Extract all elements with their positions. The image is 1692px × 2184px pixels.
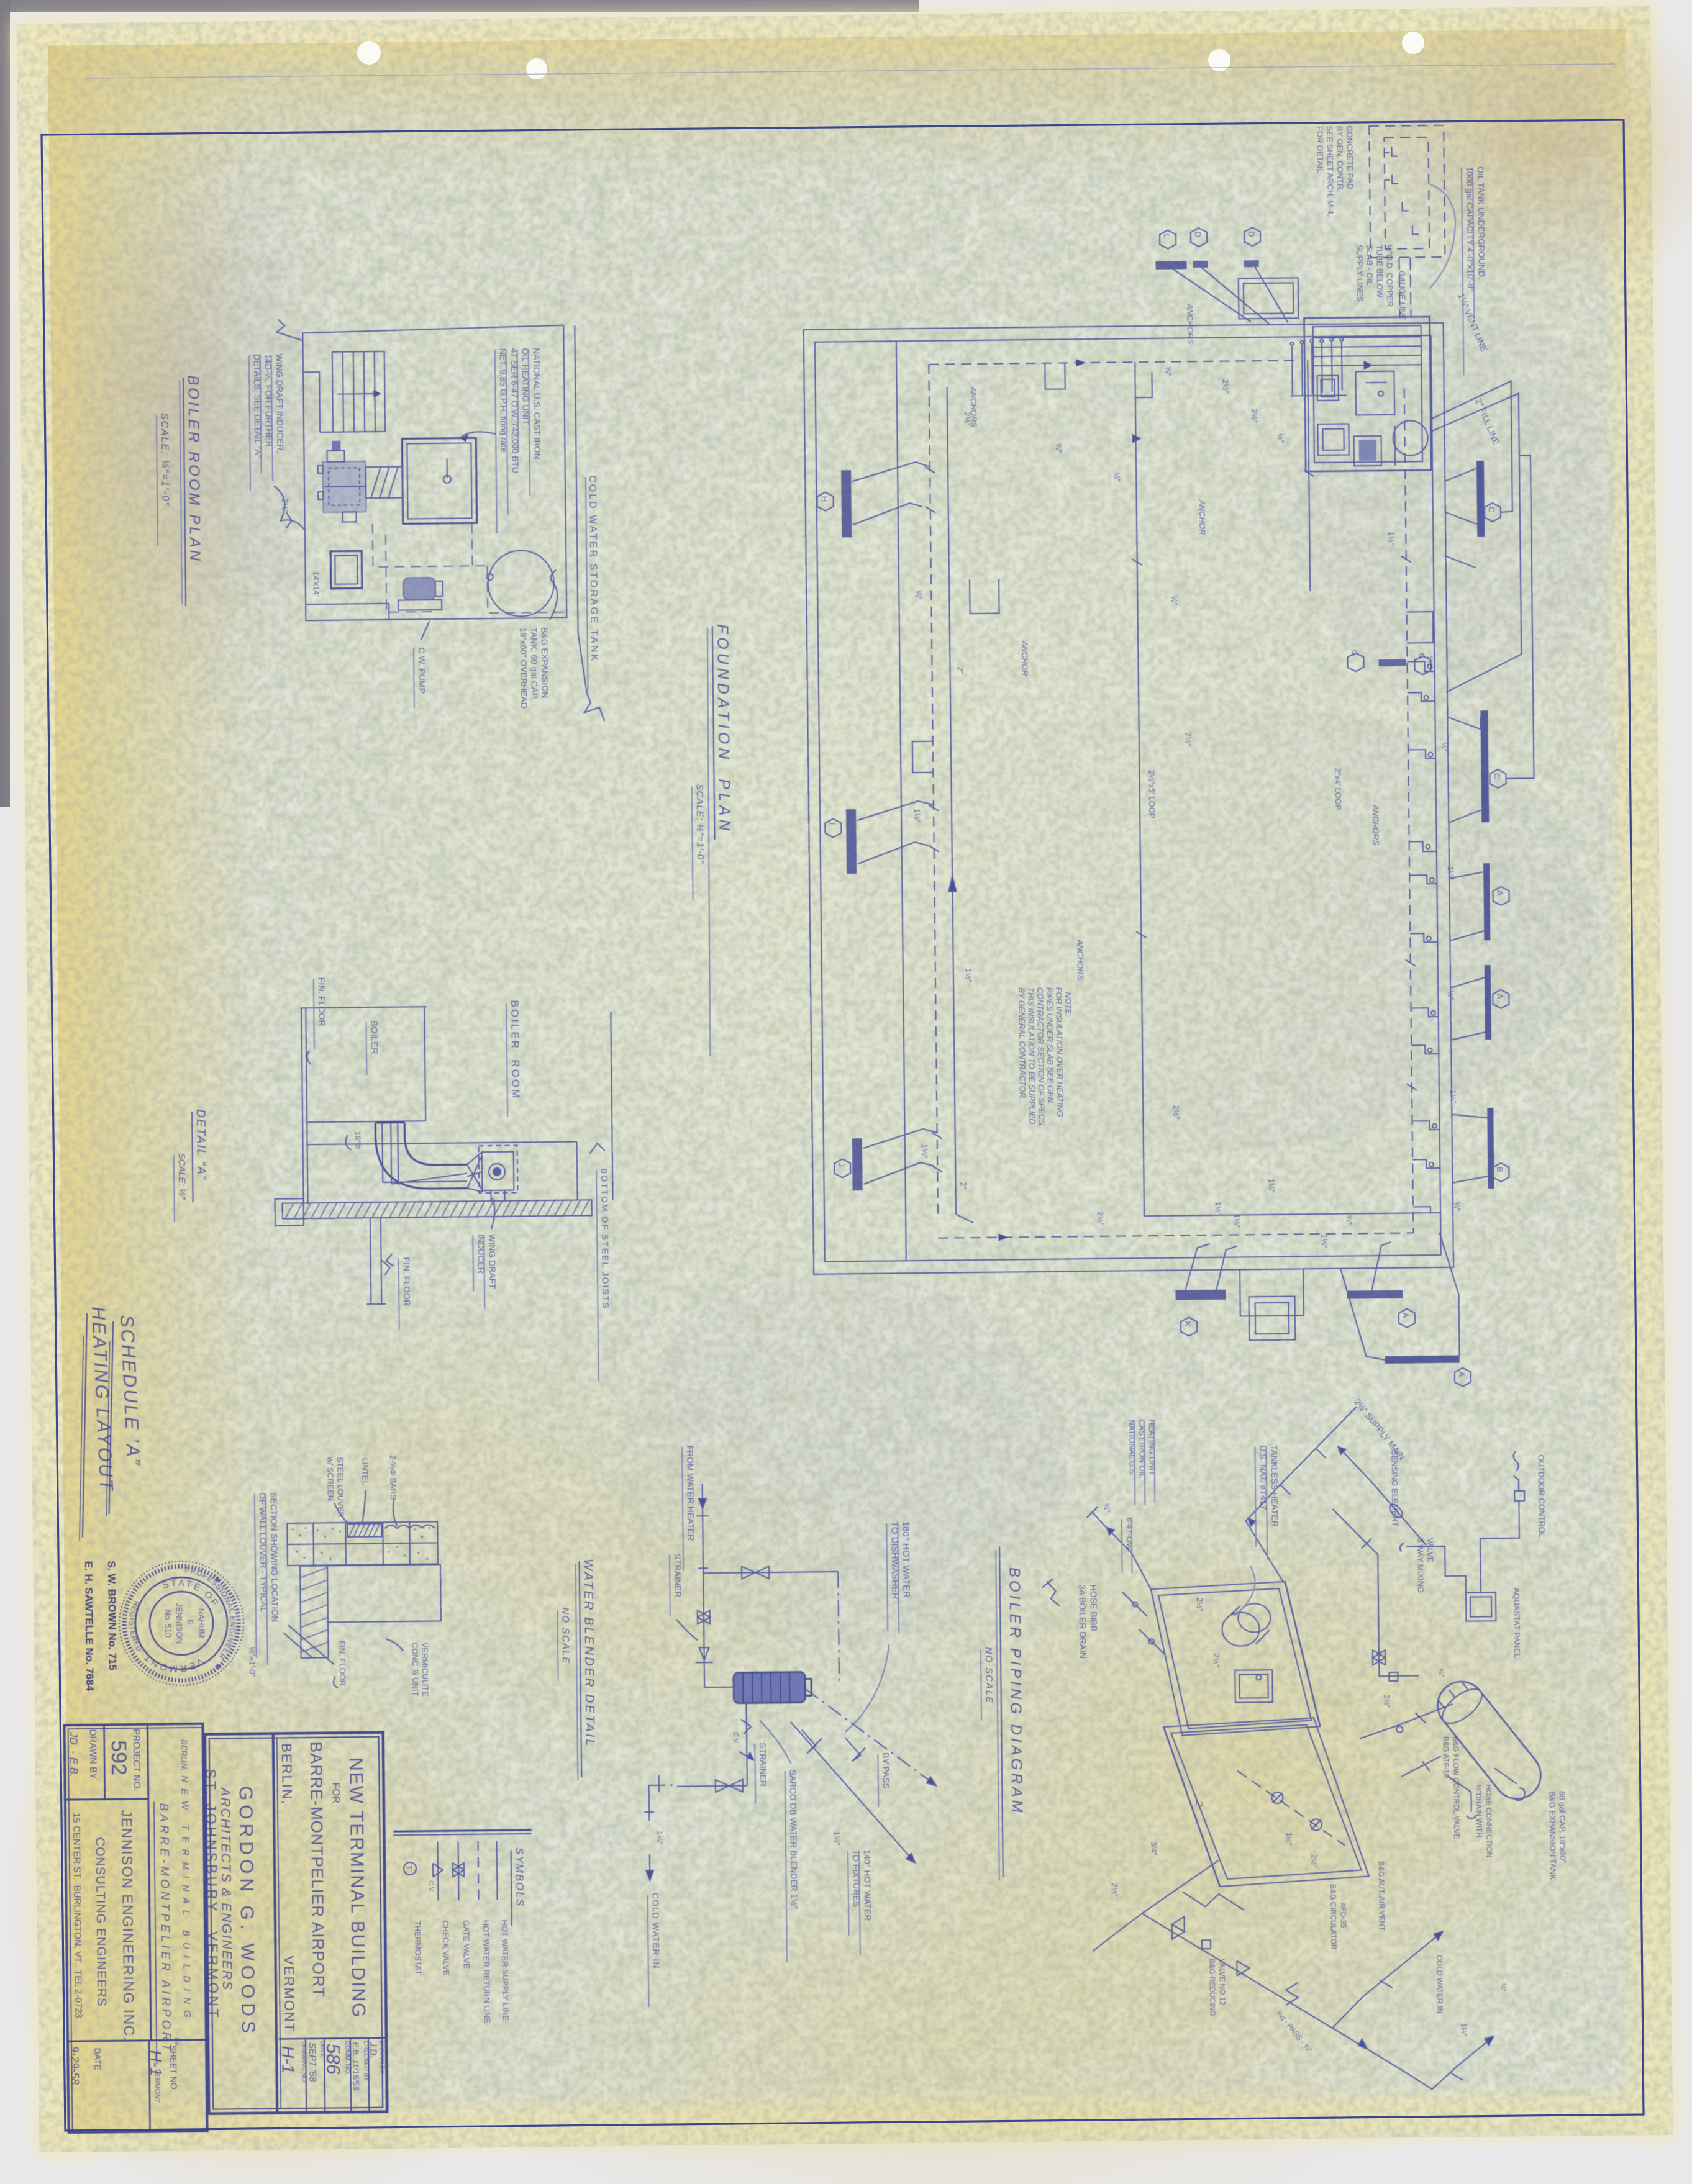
svg-text:HOSE CONNECTION: HOSE CONNECTION (1484, 1784, 1493, 1857)
svg-text:B&G CIRCULATOR: B&G CIRCULATOR (1329, 1884, 1338, 1950)
svg-text:18″x60″ OVERHEAD: 18″x60″ OVERHEAD (519, 627, 529, 709)
svg-text:SECTION SHOWING LOCATION: SECTION SHOWING LOCATION (269, 1492, 280, 1622)
svg-text:BOILER PIPING DIAGRAM: BOILER PIPING DIAGRAM (1006, 1567, 1025, 1816)
svg-text:½″: ½″ (1440, 742, 1449, 752)
svg-text:1½″: 1½″ (1214, 1202, 1223, 1216)
svg-text:2½″: 2½″ (1383, 1695, 1391, 1708)
svg-text:SENSING ELEMENT: SENSING ELEMENT (1390, 1450, 1399, 1527)
svg-text:C: C (1492, 773, 1501, 779)
svg-text:ANCHOR: ANCHOR (1020, 640, 1030, 676)
svg-text:15 CENTER ST. BURLINGTON, VT.: 15 CENTER ST. BURLINGTON, VT. TEL 2-0723 (71, 1813, 84, 2018)
svg-text:S. W. BROWN No. 715: S. W. BROWN No. 715 (106, 1561, 119, 1670)
svg-text:FROM WATER HEATER: FROM WATER HEATER (685, 1445, 696, 1541)
svg-text:COLD WATER IN: COLD WATER IN (651, 1893, 662, 1969)
svg-text:NO SCALE: NO SCALE (983, 1647, 994, 1704)
svg-text:SEE SHEET ARCH. M-4,: SEE SHEET ARCH. M-4, (1325, 126, 1335, 217)
svg-text:CONSULTING ENGINEERS: CONSULTING ENGINEERS (93, 1837, 108, 2006)
svg-text:ANCHORS: ANCHORS (1185, 303, 1195, 344)
svg-text:JENNISON: JENNISON (175, 1603, 184, 1644)
svg-text:CAST IRON OIL: CAST IRON OIL (1137, 1419, 1147, 1478)
svg-text:2½″: 2½″ (1171, 1105, 1181, 1119)
svg-text:HEATING UNIT: HEATING UNIT (1147, 1419, 1157, 1475)
svg-text:DATE: DATE (319, 2041, 325, 2057)
svg-text:BOILER ROOM PLAN: BOILER ROOM PLAN (184, 375, 203, 563)
svg-text:TUBE BELOW: TUBE BELOW (1375, 245, 1385, 298)
svg-text:G: G (1350, 650, 1359, 656)
svg-text:A: A (1495, 994, 1504, 999)
svg-text:THIS INSULATION TO BE SUPPLIED: THIS INSULATION TO BE SUPPLIED (1026, 987, 1037, 1125)
svg-text:¾″: ¾″ (1054, 443, 1063, 453)
svg-text:14′x14′: 14′x14′ (312, 571, 321, 597)
svg-text:¾″: ¾″ (1344, 1215, 1353, 1225)
svg-text:2½″x5′ LOOP: 2½″x5′ LOOP (1147, 770, 1157, 819)
svg-text:BOTTOM OF STEEL JOISTS: BOTTOM OF STEEL JOISTS (599, 1168, 611, 1310)
svg-text:B: B (1495, 1167, 1504, 1172)
svg-text:1¼″: 1¼″ (1449, 1090, 1458, 1104)
svg-text:A: A (1401, 1312, 1411, 1318)
svg-text:CHECKED BY: CHECKED BY (362, 2041, 370, 2081)
svg-text:SCALE: ⅛″=1′-0″: SCALE: ⅛″=1′-0″ (694, 784, 706, 864)
svg-text:C.W. PUMP: C.W. PUMP (417, 647, 427, 694)
svg-text:OIL TANK UNDERGROUND,: OIL TANK UNDERGROUND, (1476, 166, 1487, 279)
svg-text:47 SER 6-47 O.W. 742,000 BTU: 47 SER 6-47 O.W. 742,000 BTU (509, 348, 521, 474)
svg-text:TANK, 60 gal CAP,: TANK, 60 gal CAP, (529, 627, 540, 700)
svg-text:VERMONT: VERMONT (281, 1955, 298, 2032)
svg-text:E.B. 11/18/58: E.B. 11/18/58 (351, 2042, 361, 2091)
svg-text:DRAWN BY: DRAWN BY (88, 1729, 99, 1779)
svg-text:VALVE: VALVE (1426, 1538, 1435, 1562)
svg-text:GATE VALVE: GATE VALVE (462, 1920, 471, 1969)
svg-text:180° HOT WATER: 180° HOT WATER (900, 1521, 911, 1598)
svg-text:B&G ATF-18: B&G ATF-18 (1441, 1736, 1450, 1778)
svg-text:SCALE: ¼″=1′-0″: SCALE: ¼″=1′-0″ (159, 413, 171, 507)
svg-text:A: A (1457, 1372, 1467, 1377)
svg-text:NATIONAL U.S. CAST IRON: NATIONAL U.S. CAST IRON (532, 348, 543, 460)
svg-text:BOILER ROOM: BOILER ROOM (509, 1000, 522, 1100)
svg-text:BOILER: BOILER (368, 1020, 380, 1054)
svg-text:2½″: 2½″ (1184, 732, 1193, 746)
svg-text:B&G EXPANSION: B&G EXPANSION (540, 627, 550, 698)
svg-text:1¼″: 1¼″ (1446, 866, 1455, 881)
svg-text:2½″: 2½″ (1250, 409, 1259, 423)
svg-text:WING DRAFT INDUCER,: WING DRAFT INDUCER, (275, 354, 286, 453)
svg-text:BY PASS: BY PASS (881, 1752, 891, 1789)
svg-text:NAHUM: NAHUM (197, 1608, 207, 1638)
svg-text:COLD WATER STORAGE TANK: COLD WATER STORAGE TANK (587, 475, 599, 663)
svg-text:2½″: 2½″ (1309, 1854, 1318, 1868)
svg-text:H-1: H-1 (278, 2046, 298, 2073)
svg-text:DETAIL “A”: DETAIL “A” (194, 1109, 207, 1181)
svg-text:NO SCALE: NO SCALE (560, 1607, 571, 1664)
svg-text:BY GENERAL CONTRACTOR.: BY GENERAL CONTRACTOR. (1017, 987, 1027, 1100)
svg-text:NATIONAL U.S.: NATIONAL U.S. (1127, 1419, 1137, 1477)
svg-text:GAUGE LINE: GAUGE LINE (1398, 270, 1408, 320)
svg-text:C.V.: C.V. (427, 1881, 434, 1893)
svg-text:1¼″: 1¼″ (1319, 1234, 1329, 1248)
svg-text:NOTE:: NOTE: (1063, 992, 1073, 1017)
svg-text:WING DRAFT: WING DRAFT (487, 1234, 498, 1289)
svg-text:HOT WATER SUPPLY LINE: HOT WATER SUPPLY LINE (500, 1919, 511, 2021)
svg-text:T: T (404, 1865, 414, 1870)
svg-text:6-47-OW: 6-47-OW (1125, 1517, 1135, 1551)
svg-text:A: A (1495, 890, 1504, 896)
svg-text:C: C (1487, 507, 1496, 513)
svg-text:B&G REDUCING: B&G REDUCING (1208, 1959, 1217, 2016)
svg-text:DATE: DATE (93, 2048, 102, 2070)
svg-text:1¼″: 1¼″ (832, 1831, 842, 1846)
svg-text:¾″: ¾″ (1437, 1668, 1445, 1677)
svg-text:¾″: ¾″ (1452, 1202, 1462, 1212)
svg-text:½″: ½″ (1170, 596, 1179, 605)
svg-text:1½″: 1½″ (964, 968, 973, 982)
svg-text:½″: ½″ (1446, 990, 1455, 1000)
svg-text:3 WAY MIXING: 3 WAY MIXING (1416, 1538, 1426, 1593)
svg-text:COLD WATER IN: COLD WATER IN (1435, 1955, 1444, 2013)
svg-text:VERMONT: VERMONT (153, 2069, 161, 2104)
svg-text:2½″: 2½″ (963, 412, 972, 426)
svg-text:J: J (837, 1162, 846, 1167)
svg-text:OUTDOOR CONTROL: OUTDOOR CONTROL (1537, 1454, 1547, 1538)
svg-text:HOT WATER RETURN LINE: HOT WATER RETURN LINE (481, 1920, 492, 2024)
svg-text:9-29-58: 9-29-58 (68, 2046, 81, 2085)
svg-text:E.: E. (186, 1620, 195, 1627)
svg-text:for: for (173, 2037, 180, 2046)
svg-text:FOR DETAIL: FOR DETAIL (1315, 126, 1325, 173)
svg-text:BERLIN,: BERLIN, (180, 1739, 189, 1771)
svg-text:2½″: 2½″ (1195, 1597, 1204, 1611)
svg-text:1½″: 1½″ (912, 809, 922, 823)
svg-text:B&G AUT. AIR VENT: B&G AUT. AIR VENT (1377, 1861, 1386, 1931)
svg-text:¾″: ¾″ (1499, 1983, 1508, 1992)
svg-text:2½″: 2½″ (1096, 1212, 1105, 1226)
svg-text:CONCRETE PAD: CONCRETE PAD (1345, 125, 1355, 189)
svg-text:K: K (1183, 1321, 1193, 1326)
svg-text:DRAWING NO.: DRAWING NO. (300, 2041, 307, 2084)
svg-text:¾″: ¾″ (1102, 1503, 1111, 1513)
svg-text:✱: ✱ (212, 1576, 221, 1582)
svg-text:I: I (827, 822, 837, 825)
svg-text:2″x4′ LOOP: 2″x4′ LOOP (1333, 768, 1343, 810)
svg-text:SCALE: ½″: SCALE: ½″ (176, 1153, 188, 1200)
svg-text:16″Φ: 16″Φ (353, 1131, 362, 1149)
svg-text:COMM. NO.: COMM. NO. (343, 2041, 351, 2075)
svg-text:NEW TERMINAL BUILDING: NEW TERMINAL BUILDING (345, 1757, 369, 2019)
svg-text:THERMOSTAT: THERMOSTAT (413, 1921, 423, 1975)
svg-text:½″=1′-0″: ½″=1′-0″ (247, 1647, 257, 1677)
svg-text:1½″: 1½″ (1285, 1833, 1293, 1846)
svg-text:B&G FLOW CONTROL VALVE: B&G FLOW CONTROL VALVE (1451, 1736, 1461, 1839)
svg-text:TANKLESS HEATER: TANKLESS HEATER (1269, 1445, 1280, 1527)
svg-text:1½″: 1½″ (1232, 1213, 1242, 1228)
svg-text:CONC ⅞ UNIT: CONC ⅞ UNIT (410, 1643, 420, 1697)
svg-text:ANCHORS: ANCHORS (1371, 804, 1381, 845)
svg-text:¾″: ¾″ (914, 590, 923, 600)
svg-text:1¼″: 1¼″ (655, 1831, 664, 1845)
svg-text:H: H (820, 496, 829, 502)
svg-text:E. H. SAWTELLE No. 7684: E. H. SAWTELLE No. 7684 (83, 1561, 96, 1692)
svg-text:JD. - E.B.: JD. - E.B. (68, 1731, 80, 1777)
svg-text:DRAWN BY: DRAWN BY (378, 2041, 386, 2074)
svg-text:VALVE NO.12: VALVE NO.12 (1217, 1959, 1227, 2005)
svg-text:PROJECT NO.: PROJECT NO. (131, 1729, 142, 1792)
svg-text:½″: ½″ (1276, 433, 1285, 443)
svg-text:No. 510: No. 510 (163, 1609, 173, 1638)
svg-text:1¼″: 1¼″ (1267, 1179, 1276, 1193)
svg-text:FOUNDATION PLAN: FOUNDATION PLAN (714, 624, 734, 835)
svg-text:FIN. FLOOR: FIN. FLOOR (402, 1257, 412, 1306)
svg-text:BARRE-MONTPELIER AIRPORT: BARRE-MONTPELIER AIRPORT (157, 1803, 173, 2054)
svg-text:½″: ½″ (1112, 472, 1122, 482)
svg-text:1½″: 1½″ (1425, 655, 1434, 669)
svg-text:½″DRAIN WITH: ½″DRAIN WITH (1474, 1784, 1483, 1837)
svg-text:BERLIN,: BERLIN, (279, 1743, 295, 1805)
svg-text:L: L (1162, 234, 1171, 238)
svg-text:½″O.D. COPPER: ½″O.D. COPPER (1385, 245, 1394, 307)
svg-text:2½″: 2½″ (1221, 379, 1230, 394)
svg-text:2: 2 (1194, 1800, 1204, 1806)
svg-text:LINTEL: LINTEL (360, 1458, 370, 1485)
svg-text:SLAB - OIL: SLAB - OIL (1365, 245, 1375, 286)
svg-text:140° HOT WATER: 140° HOT WATER (862, 1849, 873, 1921)
svg-text:VERMICULITE: VERMICULITE (420, 1643, 430, 1697)
svg-text:592: 592 (107, 1740, 131, 1775)
svg-text:60 gal CAP. 18″x60″: 60 gal CAP. 18″x60″ (1557, 1791, 1567, 1863)
svg-text:✱: ✱ (214, 1663, 222, 1669)
svg-text:SARCO DB WATER BLENDER 1½″: SARCO DB WATER BLENDER 1½″ (788, 1770, 799, 1910)
svg-text:FOR: FOR (330, 1782, 341, 1803)
svg-text:2″: 2″ (956, 666, 965, 674)
svg-text:STRAINER: STRAINER (758, 1742, 768, 1787)
svg-text:#PD-35: #PD-35 (1339, 1903, 1347, 1928)
svg-text:ANCHOR: ANCHOR (1198, 499, 1208, 535)
svg-text:FIN. FLOOR: FIN. FLOOR (317, 977, 327, 1026)
svg-text:BY GEN. CONTR.: BY GEN. CONTR. (1335, 126, 1345, 192)
svg-text:1¼″: 1¼″ (1459, 2023, 1468, 2037)
svg-text:2-⅝Φ BARS: 2-⅝Φ BARS (388, 1455, 398, 1500)
svg-text:GORDON G. WOODS: GORDON G. WOODS (235, 1786, 258, 2037)
svg-text:SUPPLY LINES: SUPPLY LINES (1355, 245, 1365, 302)
svg-text:B&G EXPANSION TANK: B&G EXPANSION TANK (1547, 1791, 1558, 1880)
svg-text:AQUASTAT PANEL: AQUASTAT PANEL (1512, 1588, 1522, 1658)
svg-text:3A BOILER DRAIN: 3A BOILER DRAIN (1077, 1585, 1088, 1659)
svg-text:G: G (1417, 653, 1426, 659)
svg-text:BARRE-MONTPELIER AIRPORT: BARRE-MONTPELIER AIRPORT (307, 1742, 328, 1998)
svg-text:STRAINER: STRAINER (673, 1554, 683, 1598)
svg-text:2½″: 2½″ (1110, 1883, 1119, 1897)
svg-text:¾″: ¾″ (1163, 366, 1173, 376)
svg-text:SYMBOLS: SYMBOLS (514, 1847, 526, 1907)
svg-text:FIN. FLOOR: FIN. FLOOR (337, 1641, 347, 1686)
svg-text:SEPT ’58: SEPT ’58 (307, 2042, 318, 2082)
svg-text:3/4″: 3/4″ (1149, 1841, 1158, 1855)
svg-text:C.V.: C.V. (732, 1732, 739, 1745)
svg-text:WATER BLENDER DETAIL: WATER BLENDER DETAIL (581, 1559, 596, 1748)
svg-text:1½″: 1½″ (1386, 532, 1396, 546)
svg-text:HOSE BIBB: HOSE BIBB (1088, 1585, 1099, 1632)
svg-text:1¼″: 1¼″ (920, 1144, 929, 1158)
svg-text:ST. JOHNSBURY, VERMONT: ST. JOHNSBURY, VERMONT (202, 1769, 221, 2021)
svg-text:CHECK VALVE: CHECK VALVE (441, 1920, 451, 1976)
svg-text:D: D (1193, 232, 1203, 238)
svg-text:JENNISON ENGINEERING INC.: JENNISON ENGINEERING INC. (119, 1810, 137, 2042)
svg-text:D: D (1247, 231, 1256, 237)
svg-text:ANCHORS.: ANCHORS. (1075, 939, 1085, 982)
svg-text:2½″: 2½″ (1212, 1653, 1221, 1667)
svg-text:2″: 2″ (959, 1182, 968, 1189)
svg-text:w/ SCREEN: w/ SCREEN (325, 1456, 335, 1501)
